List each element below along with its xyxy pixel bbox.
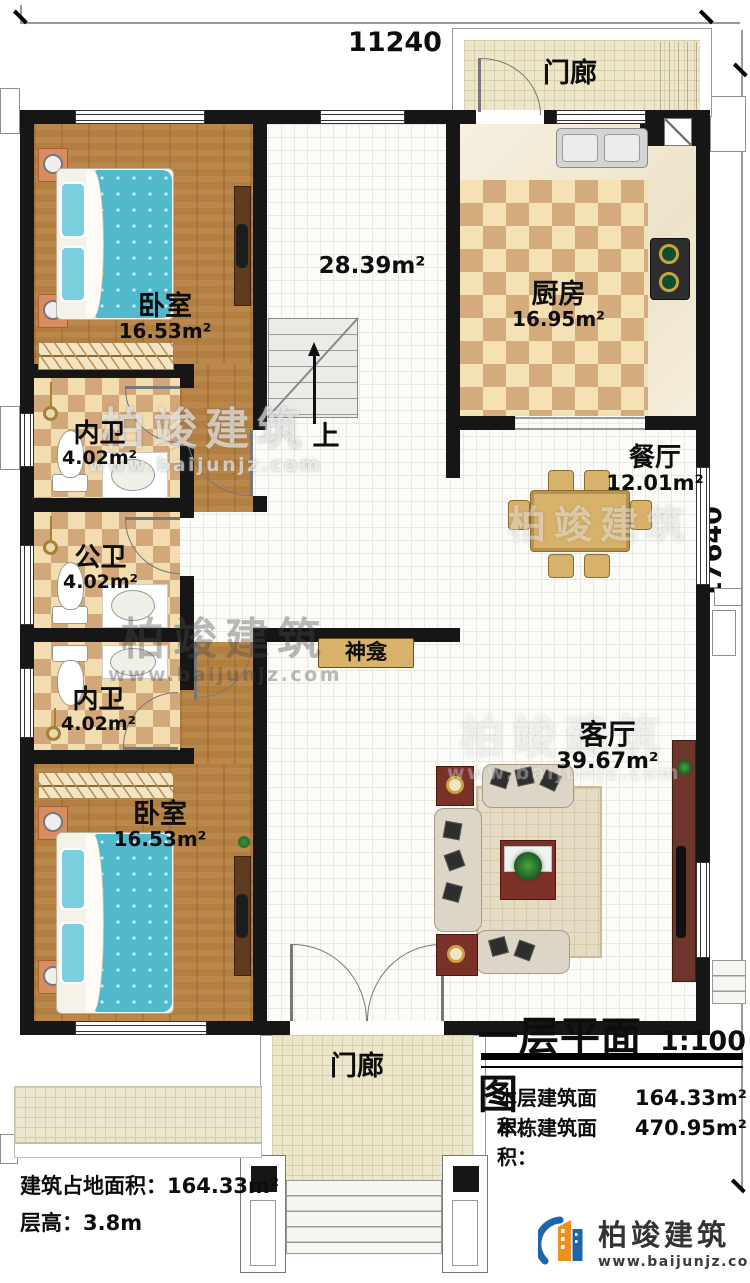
wall [253,496,267,512]
porch-column [453,1166,479,1192]
wall [645,416,696,430]
window [20,668,34,738]
shower-stem [50,382,52,408]
exterior-steps [712,960,746,1004]
footer-row-label: 层高： [20,1207,83,1237]
room-area: 12.01m² [580,472,730,495]
room-area: 16.53m² [90,829,230,851]
monitor-icon [236,894,248,938]
door-leaf [250,430,253,496]
room-name: 客厅 [530,720,685,750]
room-area: 4.02m² [51,714,146,735]
dining-chair [508,500,530,530]
room-label-bedroom1: 卧室 16.53m² [95,292,235,348]
title-underline-thin [481,1066,743,1068]
stairs-up-label: 上 [302,422,350,452]
room-area: 16.53m² [95,321,235,343]
exterior-platform [712,610,736,656]
window [20,545,34,625]
monitor-icon [236,224,248,268]
dimension-top-label: 11240 [325,28,465,60]
room-area: 39.67m² [530,750,685,774]
area-row-value: 164.33m² [635,1086,747,1110]
tv-icon [676,846,686,938]
wall [20,628,194,642]
room-name: 内卫 [52,420,147,448]
wall [253,124,267,430]
exterior-platform [0,88,20,134]
room-label-bath1: 内卫 4.02m² [52,420,147,476]
wall [180,364,194,388]
area-row-value: 470.95m² [635,1116,747,1140]
sink-basin-left [562,134,598,162]
wall [446,416,515,430]
window [75,1021,207,1035]
footer-row-value: 164.33m² [167,1174,279,1198]
wall [34,498,194,512]
floor-plan-canvas: 11240 17640 门廊 [0,0,750,1283]
dimension-line-top [20,22,740,24]
room-area: 4.02m² [53,572,148,593]
burner-icon [659,272,679,292]
pillow [60,848,86,910]
cased-opening-line [515,417,645,419]
dining-chair [548,554,574,578]
dining-table [530,490,630,552]
porch-top-steps [652,42,700,115]
title-underline-thick [481,1053,743,1060]
porch-bottom-label: 门廊 [302,1052,412,1082]
terrace-walkway [14,1143,262,1158]
area-row-label: 本栋建筑面积： [497,1112,635,1170]
wall [180,748,194,764]
bed-blanket [94,834,172,1012]
stairs-arrow-icon [308,342,320,356]
room-name: 厨房 [486,280,631,309]
dining-chair [630,500,652,530]
brand-logo-icon [538,1211,592,1271]
hall-area-label: 28.39m² [297,254,447,284]
porch-column-shaft [452,1200,478,1266]
lamp-icon [43,812,63,832]
side-table-inlay [447,945,465,963]
room-label-dining: 餐厅 12.01m² [580,444,730,498]
stairs-direction-line [313,354,316,424]
room-label-bath2: 公卫 4.02m² [53,544,148,600]
window [75,110,205,124]
pillow [60,246,86,302]
room-label-bedroom2: 卧室 16.53m² [90,800,230,856]
door-leaf [123,747,178,750]
side-table-inlay [446,776,464,794]
terrace-floor [14,1086,262,1143]
window [320,110,405,124]
room-label-living: 客厅 39.67m² [530,720,685,778]
room-name: 内卫 [51,686,146,714]
wall [180,642,194,690]
shower-stem [50,516,52,542]
brand-logo: 柏竣建筑 www.baijunjz.com [538,1206,748,1276]
pillow [60,922,86,984]
wall [34,750,180,764]
door-opening [290,1021,444,1035]
title-block-row: 本层建筑面积： 164.33m² [497,1082,747,1108]
shower-head-icon [43,406,58,421]
brand-name: 柏竣建筑 [598,1212,750,1254]
pillow [60,182,86,238]
room-area: 16.95m² [486,309,631,331]
room-area: 4.02m² [52,448,147,469]
exterior-platform [714,588,742,606]
wardrobe [38,772,174,799]
footer-row-label: 建筑占地面积： [20,1170,167,1200]
sofa-cushion [443,821,463,841]
exterior-platform [0,406,20,470]
building-icon [538,1211,592,1271]
room-name: 卧室 [90,800,230,829]
sink-basin [110,648,156,676]
burner-icon [659,244,679,264]
window [556,110,646,124]
dining-chair [584,554,610,578]
room-label-bath3: 内卫 4.02m² [51,686,146,742]
room-name: 公卫 [53,544,148,572]
exterior-platform [710,96,746,152]
shrine-label: 神龛 [318,641,414,667]
plant-icon [514,852,542,880]
room-label-kitchen: 厨房 16.95m² [486,280,631,338]
window [696,862,710,958]
footer-row-value: 3.8m [83,1211,142,1235]
room-name: 卧室 [95,292,235,321]
sink-basin-right [604,134,640,162]
room-name: 餐厅 [580,444,730,472]
dimension-tick [731,1179,745,1193]
title-block: 一层平面图 1:100 [478,1004,746,1050]
cased-opening-line [515,428,645,430]
plant-icon [238,836,250,848]
footer-row: 层高： 3.8m [20,1207,340,1235]
kitchen-corner-cabinet [664,118,692,146]
footer-row: 建筑占地面积： 164.33m² [20,1170,340,1198]
title-block-row: 本栋建筑面积： 470.95m² [497,1112,747,1138]
brand-url: www.baijunjz.com [598,1254,750,1270]
window [20,413,34,467]
wall [253,642,267,1021]
